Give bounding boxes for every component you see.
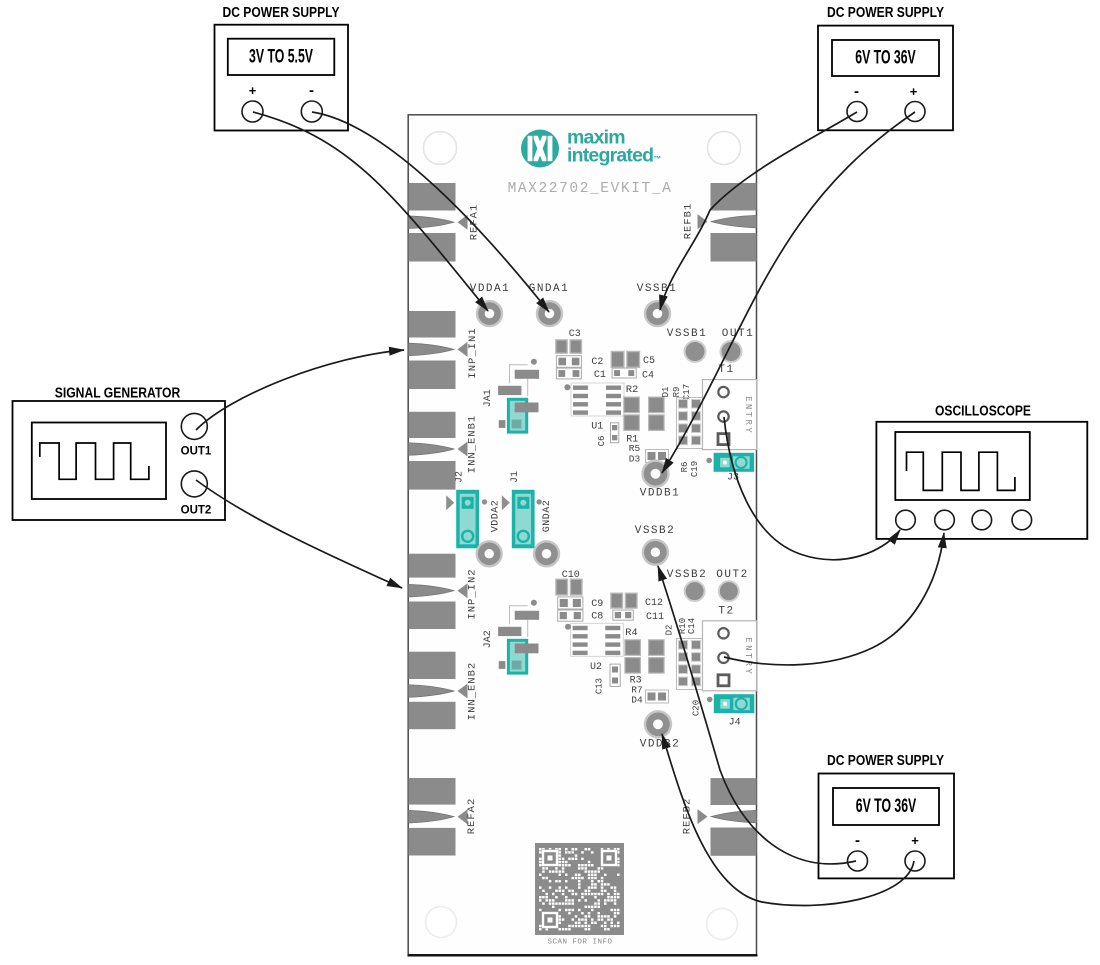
svg-text:C8: C8 — [591, 612, 603, 623]
svg-text:-: - — [854, 83, 859, 100]
svg-text:6V TO 36V: 6V TO 36V — [855, 48, 916, 69]
svg-text:+: + — [910, 84, 918, 99]
svg-text:JA1: JA1 — [483, 389, 494, 407]
svg-text:DC POWER SUPPLY: DC POWER SUPPLY — [827, 5, 944, 21]
svg-text:D2: D2 — [664, 625, 674, 636]
svg-text:VSSB1: VSSB1 — [667, 328, 708, 340]
svg-text:VSSB2: VSSB2 — [635, 525, 676, 537]
svg-text:T2: T2 — [718, 606, 734, 618]
svg-text:+: + — [911, 833, 919, 848]
svg-text:SIGNAL GENERATOR: SIGNAL GENERATOR — [55, 386, 181, 402]
svg-text:R5: R5 — [629, 443, 641, 454]
svg-text:SCAN FOR INFO: SCAN FOR INFO — [547, 939, 612, 947]
svg-text:C3: C3 — [569, 329, 581, 340]
svg-text:OSCILLOSCOPE: OSCILLOSCOPE — [935, 404, 1031, 420]
svg-text:6V TO 36V: 6V TO 36V — [856, 796, 917, 817]
svg-text:OUT2: OUT2 — [181, 505, 212, 517]
svg-text:REFB1: REFB1 — [683, 203, 695, 240]
svg-text:ENTRY: ENTRY — [743, 637, 753, 676]
svg-text:-: - — [309, 82, 314, 99]
svg-text:VSSB2: VSSB2 — [667, 569, 708, 581]
svg-text:OUT2: OUT2 — [716, 569, 748, 581]
svg-text:C9: C9 — [591, 599, 603, 610]
svg-text:C12: C12 — [645, 598, 663, 609]
svg-text:OUT1: OUT1 — [181, 446, 212, 458]
svg-text:R9: R9 — [672, 387, 682, 398]
svg-text:VDDB2: VDDB2 — [640, 739, 681, 751]
svg-text:C5: C5 — [643, 356, 655, 367]
svg-text:J2: J2 — [455, 471, 466, 483]
svg-text:D3: D3 — [629, 454, 641, 465]
svg-text:integrated™: integrated™ — [567, 145, 660, 167]
svg-text:R4: R4 — [625, 627, 638, 639]
svg-text:VSSB1: VSSB1 — [637, 283, 678, 295]
svg-text:INP_IN2: INP_IN2 — [467, 568, 479, 619]
svg-text:GNDA2: GNDA2 — [542, 500, 553, 533]
svg-text:R6: R6 — [680, 462, 690, 473]
svg-text:DC POWER SUPPLY: DC POWER SUPPLY — [827, 753, 944, 769]
svg-text:R2: R2 — [626, 384, 639, 396]
svg-text:INN_ENB1: INN_ENB1 — [467, 415, 479, 473]
svg-text:D1: D1 — [661, 387, 671, 398]
svg-text:C2: C2 — [591, 357, 603, 368]
svg-text:REFA2: REFA2 — [466, 798, 478, 835]
svg-text:C6: C6 — [597, 436, 607, 447]
svg-text:J4: J4 — [729, 718, 741, 729]
svg-text:D4: D4 — [631, 695, 643, 706]
svg-text:U1: U1 — [591, 422, 603, 433]
svg-text:VDDB1: VDDB1 — [640, 488, 681, 500]
svg-text:+: + — [249, 83, 257, 98]
svg-text:JA2: JA2 — [483, 630, 494, 648]
svg-text:MAX22702_EVKIT_A: MAX22702_EVKIT_A — [508, 181, 673, 197]
svg-text:C13: C13 — [595, 678, 605, 694]
svg-text:C1: C1 — [594, 370, 606, 381]
svg-text:INP_IN1: INP_IN1 — [467, 327, 479, 378]
svg-text:VDDA2: VDDA2 — [490, 500, 501, 533]
svg-text:C4: C4 — [642, 371, 654, 382]
svg-text:ENTRY: ENTRY — [743, 396, 753, 435]
svg-text:-: - — [855, 832, 860, 849]
svg-text:U2: U2 — [590, 662, 602, 673]
svg-text:C14: C14 — [687, 618, 697, 634]
svg-text:C19: C19 — [690, 461, 700, 477]
svg-text:J1: J1 — [510, 471, 521, 483]
svg-text:3V TO 5.5V: 3V TO 5.5V — [249, 47, 313, 68]
svg-text:VDDA1: VDDA1 — [470, 283, 511, 295]
svg-text:INN_ENB2: INN_ENB2 — [467, 662, 479, 720]
svg-text:REFB2: REFB2 — [681, 798, 693, 835]
svg-text:C11: C11 — [646, 612, 664, 623]
svg-text:DC POWER SUPPLY: DC POWER SUPPLY — [223, 5, 340, 21]
